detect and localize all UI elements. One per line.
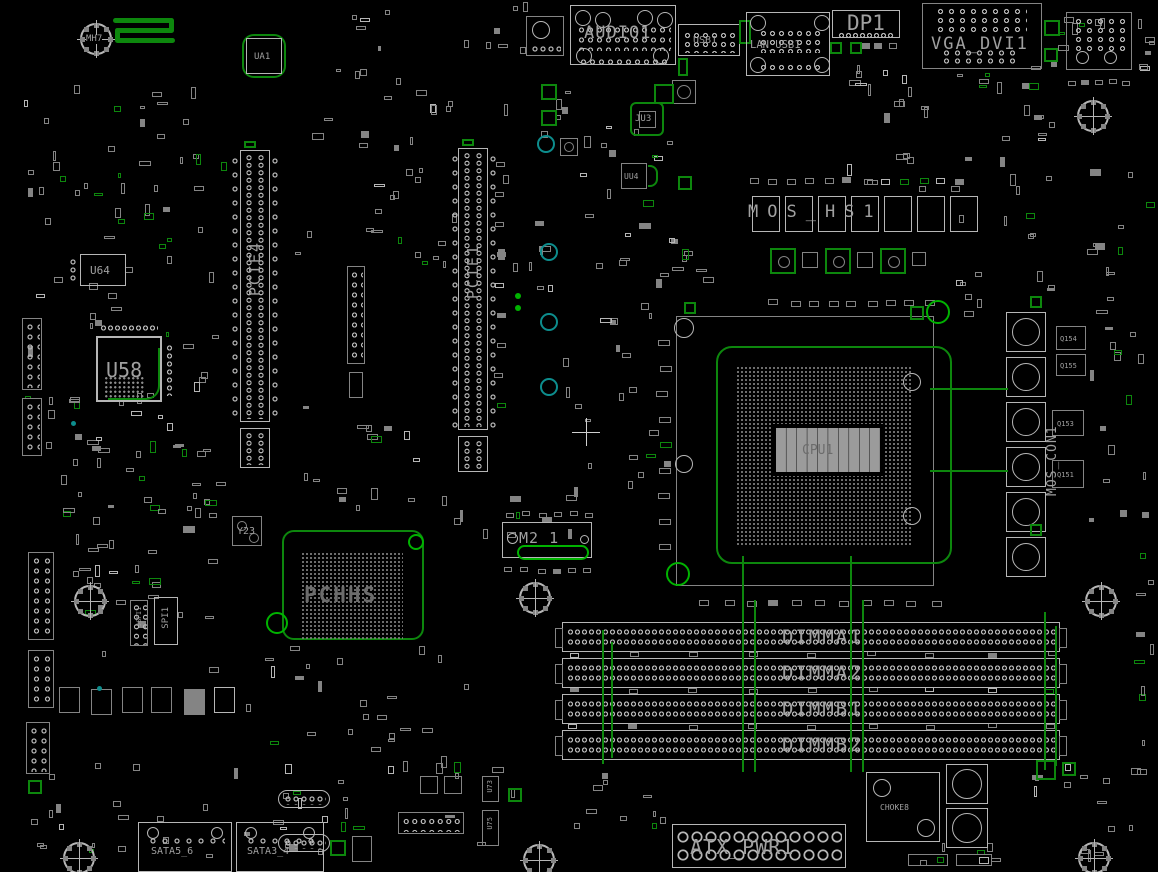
passive-component[interactable] — [956, 280, 964, 285]
passive-component[interactable] — [97, 458, 101, 468]
passive-component[interactable] — [371, 747, 381, 752]
passive-component[interactable] — [1064, 782, 1070, 788]
passive-component[interactable] — [144, 497, 152, 503]
passive-component[interactable] — [400, 728, 411, 731]
passive-component[interactable] — [563, 358, 569, 366]
passive-component[interactable] — [431, 105, 437, 115]
passive-component[interactable] — [1142, 740, 1146, 746]
passive-component[interactable] — [195, 508, 201, 518]
passive-component[interactable] — [562, 107, 567, 115]
passive-component[interactable] — [1080, 775, 1088, 779]
passive-component[interactable] — [158, 509, 166, 515]
passive-component[interactable] — [1047, 288, 1055, 292]
passive-component[interactable] — [903, 153, 909, 159]
passive-component[interactable] — [448, 101, 453, 108]
passive-component[interactable] — [1118, 225, 1124, 229]
passive-component[interactable] — [49, 810, 53, 818]
passive-component[interactable] — [548, 285, 553, 293]
passive-component[interactable] — [139, 161, 150, 165]
passive-component[interactable] — [76, 534, 79, 544]
vrm-inductor[interactable] — [950, 196, 978, 232]
passive-component[interactable] — [494, 28, 501, 34]
passive-component[interactable] — [629, 455, 638, 460]
passive-component[interactable] — [356, 505, 360, 511]
passive-component[interactable] — [205, 500, 216, 506]
passive-component[interactable] — [1136, 632, 1145, 637]
passive-component[interactable] — [139, 476, 146, 481]
passive-component[interactable] — [1131, 768, 1141, 774]
passive-component[interactable] — [622, 353, 631, 357]
passive-component[interactable] — [187, 506, 192, 511]
passive-component[interactable] — [357, 425, 369, 429]
passive-component[interactable] — [495, 192, 504, 197]
passive-component[interactable] — [69, 399, 80, 403]
mounting-hole-top-right[interactable] — [1077, 100, 1109, 132]
passive-component[interactable] — [951, 186, 960, 192]
passive-component[interactable] — [348, 729, 353, 735]
pcie-slot-pcie1-tail[interactable] — [458, 436, 488, 472]
passive-component[interactable] — [393, 191, 399, 199]
passive-component[interactable] — [197, 451, 206, 457]
passive-component[interactable] — [60, 176, 66, 182]
passive-component[interactable] — [643, 795, 653, 799]
passive-component[interactable] — [234, 768, 238, 779]
passive-component[interactable] — [152, 92, 161, 97]
vrm-mosfet-green[interactable] — [770, 248, 796, 274]
passive-component[interactable] — [889, 43, 897, 49]
passive-component[interactable] — [537, 286, 544, 290]
passive-component[interactable] — [669, 238, 675, 243]
passive-component[interactable] — [1145, 51, 1152, 55]
mosfet-q155[interactable]: Q155 — [1056, 354, 1086, 376]
passive-component[interactable] — [619, 260, 627, 266]
passive-component[interactable] — [419, 168, 422, 173]
passive-component[interactable] — [699, 600, 709, 606]
passive-component[interactable] — [205, 616, 214, 620]
choke[interactable] — [1006, 312, 1046, 352]
passive-component[interactable] — [862, 43, 870, 49]
passive-component[interactable] — [1138, 19, 1142, 29]
passive-component[interactable] — [415, 252, 421, 258]
passive-component[interactable] — [178, 612, 183, 618]
passive-component[interactable] — [628, 481, 633, 489]
dimm-slot-dimma1[interactable]: DIMMA1 — [562, 622, 1060, 652]
passive-component[interactable] — [649, 313, 652, 319]
passive-component[interactable] — [109, 571, 118, 574]
passive-component[interactable] — [31, 819, 38, 825]
passive-component[interactable] — [208, 559, 218, 565]
passive-component[interactable] — [656, 391, 668, 397]
passive-component[interactable] — [209, 513, 216, 519]
passive-component[interactable] — [979, 85, 987, 88]
passive-component[interactable] — [1068, 81, 1076, 86]
passive-component[interactable] — [957, 74, 964, 78]
passive-component[interactable] — [150, 441, 156, 453]
passive-component[interactable] — [602, 773, 608, 779]
mosfet-q154[interactable]: Q154 — [1056, 326, 1086, 350]
passive-component[interactable] — [643, 200, 654, 207]
passive-component[interactable] — [422, 261, 428, 265]
passive-component[interactable] — [936, 178, 945, 184]
passive-component[interactable] — [159, 244, 166, 249]
passive-component[interactable] — [216, 482, 226, 486]
passive-component[interactable] — [659, 468, 671, 474]
passive-component[interactable] — [846, 301, 856, 307]
passive-component[interactable] — [991, 858, 1001, 862]
passive-component[interactable] — [656, 279, 662, 288]
passive-component[interactable] — [209, 272, 214, 283]
passive-component[interactable] — [378, 46, 381, 51]
passive-component[interactable] — [355, 71, 360, 79]
passive-component[interactable] — [606, 126, 612, 129]
passive-component[interactable] — [194, 186, 203, 190]
passive-component[interactable] — [387, 696, 397, 699]
front-panel-header[interactable] — [28, 552, 54, 640]
passive-component[interactable] — [649, 430, 659, 435]
passive-component[interactable] — [359, 143, 368, 148]
passive-component[interactable] — [975, 272, 981, 278]
passive-component[interactable] — [419, 646, 425, 655]
passive-component[interactable] — [566, 495, 577, 501]
dimm-slot-dimma2[interactable]: DIMMA2 — [562, 658, 1060, 688]
passive-component[interactable] — [868, 301, 878, 307]
passive-component[interactable] — [660, 817, 666, 825]
passive-component[interactable] — [1046, 176, 1052, 181]
passive-component[interactable] — [869, 724, 878, 729]
passive-component[interactable] — [389, 733, 396, 739]
passive-component[interactable] — [894, 101, 904, 107]
passive-component[interactable] — [520, 567, 528, 572]
passive-component[interactable] — [270, 741, 279, 745]
passive-component[interactable] — [388, 766, 394, 773]
coil[interactable] — [946, 808, 988, 848]
passive-component[interactable] — [98, 448, 109, 453]
passive-component[interactable] — [639, 223, 650, 229]
spi-flash-chip[interactable]: SPI1 — [154, 597, 178, 645]
passive-component[interactable] — [157, 102, 169, 106]
passive-component[interactable] — [565, 91, 570, 94]
passive-component[interactable] — [337, 488, 347, 494]
passive-component[interactable] — [353, 826, 365, 829]
passive-component[interactable] — [566, 387, 570, 398]
passive-component[interactable] — [135, 565, 139, 573]
passive-component[interactable] — [1038, 133, 1047, 137]
passive-component[interactable] — [154, 185, 158, 192]
passive-component[interactable] — [658, 493, 670, 499]
passive-component[interactable] — [538, 569, 546, 574]
passive-component[interactable] — [652, 823, 657, 829]
lan-usb-connector[interactable]: LAN_USB1 — [746, 12, 830, 76]
small-part[interactable] — [908, 854, 948, 866]
passive-component[interactable] — [180, 157, 183, 164]
small-part[interactable] — [672, 80, 696, 104]
passive-component[interactable] — [114, 106, 121, 111]
passive-component[interactable] — [965, 157, 972, 161]
passive-component[interactable] — [48, 410, 55, 418]
passive-component[interactable] — [808, 688, 817, 693]
passive-component[interactable] — [433, 256, 439, 260]
passive-component[interactable] — [856, 71, 862, 77]
passive-component[interactable] — [504, 567, 512, 572]
passive-component[interactable] — [290, 646, 301, 651]
passive-component[interactable] — [1090, 169, 1101, 175]
passive-component[interactable] — [183, 526, 195, 533]
passive-component[interactable] — [688, 688, 697, 693]
passive-component[interactable] — [151, 687, 172, 713]
passive-component[interactable] — [246, 704, 251, 712]
passive-component[interactable] — [49, 774, 55, 780]
passive-component[interactable] — [203, 804, 208, 810]
passive-component[interactable] — [1140, 553, 1146, 559]
passive-component[interactable] — [497, 313, 506, 318]
choke[interactable] — [1006, 447, 1046, 487]
mounting-hole-bottom-center[interactable] — [523, 844, 555, 872]
passive-component[interactable] — [1100, 426, 1106, 431]
passive-component[interactable] — [374, 184, 385, 187]
passive-component[interactable] — [371, 230, 382, 234]
passive-component[interactable] — [307, 732, 316, 736]
passive-component[interactable] — [410, 137, 414, 145]
passive-component[interactable] — [404, 431, 410, 439]
passive-component[interactable] — [75, 434, 82, 441]
passive-component[interactable] — [1142, 512, 1149, 518]
choke[interactable] — [1006, 537, 1046, 577]
passive-component[interactable] — [585, 513, 593, 518]
passive-component[interactable] — [964, 311, 974, 317]
passive-component[interactable] — [997, 82, 1003, 94]
passive-component[interactable] — [630, 652, 639, 657]
passive-component[interactable] — [847, 164, 852, 175]
passive-component[interactable] — [583, 568, 591, 573]
passive-component[interactable] — [955, 179, 964, 185]
passive-component[interactable] — [184, 689, 205, 715]
passive-component[interactable] — [616, 345, 620, 352]
mounting-hole-mh7[interactable]: MH7 — [80, 23, 112, 55]
passive-component[interactable] — [1090, 370, 1094, 381]
passive-component[interactable] — [377, 715, 387, 721]
passive-component[interactable] — [148, 550, 157, 554]
mounting-hole-bottom-right[interactable] — [1078, 842, 1110, 872]
passive-component[interactable] — [360, 700, 368, 707]
passive-component[interactable] — [553, 569, 561, 574]
passive-component[interactable] — [194, 382, 200, 392]
passive-component[interactable] — [498, 44, 508, 48]
passive-component[interactable] — [588, 463, 592, 470]
passive-component[interactable] — [829, 301, 839, 307]
small-part[interactable] — [857, 252, 873, 268]
dimm-slot-dimmb1[interactable]: DIMMB1 — [562, 694, 1060, 724]
passive-component[interactable] — [1114, 350, 1121, 355]
passive-component[interactable] — [144, 213, 154, 220]
passive-component[interactable] — [1134, 660, 1144, 664]
passive-component[interactable] — [1107, 297, 1114, 301]
passive-component[interactable] — [979, 79, 989, 84]
chip-u73[interactable]: U73 — [482, 776, 499, 802]
passive-component[interactable] — [884, 600, 894, 606]
pch-chip[interactable]: PCHHS — [301, 552, 403, 640]
passive-component[interactable] — [919, 186, 925, 192]
passive-component[interactable] — [191, 87, 197, 99]
passive-component[interactable] — [371, 488, 378, 499]
passive-component[interactable] — [539, 513, 547, 518]
passive-component[interactable] — [398, 237, 402, 244]
small-part[interactable] — [349, 372, 363, 398]
small-part[interactable] — [560, 138, 578, 156]
passive-component[interactable] — [504, 104, 508, 115]
passive-component[interactable] — [108, 146, 114, 152]
passive-component[interactable] — [59, 824, 64, 830]
passive-component[interactable] — [516, 512, 520, 519]
passive-component[interactable] — [109, 540, 114, 549]
passive-component[interactable] — [942, 843, 945, 852]
choke[interactable] — [1006, 357, 1046, 397]
passive-component[interactable] — [792, 600, 802, 606]
passive-component[interactable] — [167, 256, 172, 264]
passive-component[interactable] — [46, 442, 52, 448]
rear-io-stack-connector[interactable] — [1066, 12, 1132, 70]
vrm-mosfet-green[interactable] — [825, 248, 851, 274]
passive-component[interactable] — [672, 267, 683, 271]
passive-component[interactable] — [396, 78, 401, 85]
passive-component[interactable] — [313, 479, 320, 482]
passive-component[interactable] — [638, 472, 645, 479]
passive-component[interactable] — [921, 106, 929, 110]
passive-component[interactable] — [28, 170, 33, 175]
passive-component[interactable] — [920, 178, 929, 184]
chip-u64[interactable]: U64 — [80, 254, 126, 286]
passive-component[interactable] — [118, 173, 121, 179]
passive-component[interactable] — [403, 761, 408, 772]
passive-component[interactable] — [522, 511, 530, 516]
passive-component[interactable] — [658, 340, 670, 346]
passive-component[interactable] — [337, 658, 343, 665]
passive-component[interactable] — [56, 804, 61, 813]
passive-component[interactable] — [659, 417, 671, 423]
passive-component[interactable] — [584, 136, 591, 148]
passive-component[interactable] — [312, 133, 324, 140]
passive-component[interactable] — [568, 724, 577, 729]
passive-component[interactable] — [102, 651, 106, 657]
passive-component[interactable] — [1087, 249, 1098, 255]
passive-component[interactable] — [118, 815, 129, 820]
passive-component[interactable] — [620, 816, 627, 821]
choke[interactable] — [1006, 402, 1046, 442]
passive-component[interactable] — [140, 106, 145, 109]
passive-component[interactable] — [384, 426, 392, 430]
passive-component[interactable] — [659, 544, 671, 550]
passive-component[interactable] — [36, 294, 45, 298]
passive-component[interactable] — [932, 601, 942, 607]
passive-component[interactable] — [628, 724, 637, 729]
passive-component[interactable] — [988, 688, 997, 693]
sata-connector-5-6[interactable]: SATA5_6 — [138, 822, 232, 872]
passive-component[interactable] — [629, 387, 637, 394]
passive-component[interactable] — [73, 459, 78, 466]
pin-header[interactable] — [28, 650, 54, 708]
passive-component[interactable] — [868, 84, 871, 96]
passive-component[interactable] — [196, 154, 201, 165]
choke8[interactable]: CHOKE8 — [866, 772, 940, 842]
passive-component[interactable] — [1130, 332, 1136, 337]
crystal-y23[interactable]: Y23 — [232, 516, 262, 546]
passive-component[interactable] — [94, 193, 103, 197]
small-part[interactable] — [802, 252, 818, 268]
pcie-slot-pcie1[interactable]: PCIE1 — [458, 148, 488, 430]
passive-component[interactable] — [454, 762, 460, 773]
passive-component[interactable] — [580, 173, 587, 177]
passive-component[interactable] — [1146, 202, 1154, 208]
passive-component[interactable] — [664, 461, 671, 467]
passive-component[interactable] — [1030, 233, 1036, 236]
passive-component[interactable] — [660, 442, 672, 448]
passive-component[interactable] — [265, 658, 274, 661]
mounting-hole-center[interactable] — [519, 582, 551, 614]
passive-component[interactable] — [1002, 136, 1010, 141]
passive-component[interactable] — [1109, 79, 1117, 84]
small-part[interactable] — [352, 836, 372, 862]
passive-component[interactable] — [446, 106, 451, 112]
passive-component[interactable] — [977, 299, 982, 308]
passive-component[interactable] — [809, 301, 819, 307]
passive-component[interactable] — [1095, 80, 1103, 85]
passive-component[interactable] — [104, 236, 115, 239]
passive-component[interactable] — [198, 227, 203, 233]
passive-component[interactable] — [212, 335, 218, 339]
passive-component[interactable] — [443, 261, 446, 269]
passive-component[interactable] — [506, 513, 514, 518]
passive-component[interactable] — [1029, 83, 1039, 90]
passive-component[interactable] — [111, 307, 121, 311]
passive-component[interactable] — [1126, 395, 1132, 405]
passive-component[interactable] — [1089, 518, 1094, 522]
chip-u75[interactable]: U75 — [482, 810, 499, 846]
passive-component[interactable] — [1038, 138, 1046, 142]
passive-component[interactable] — [75, 190, 81, 196]
passive-component[interactable] — [54, 277, 63, 283]
passive-component[interactable] — [864, 179, 873, 185]
passive-component[interactable] — [203, 449, 211, 452]
passive-component[interactable] — [601, 143, 607, 148]
passive-component[interactable] — [965, 294, 971, 300]
passive-component[interactable] — [307, 231, 312, 238]
passive-component[interactable] — [787, 179, 796, 185]
passive-component[interactable] — [192, 483, 201, 486]
passive-component[interactable] — [1051, 62, 1057, 67]
passive-component[interactable] — [1010, 174, 1016, 186]
passive-component[interactable] — [855, 83, 867, 87]
passive-component[interactable] — [132, 581, 140, 585]
jumper-block[interactable] — [278, 790, 330, 808]
passive-component[interactable] — [352, 15, 358, 20]
passive-component[interactable] — [24, 100, 28, 107]
passive-component[interactable] — [356, 26, 366, 30]
passive-component[interactable] — [659, 519, 671, 525]
passive-component[interactable] — [438, 241, 447, 247]
passive-component[interactable] — [108, 293, 117, 298]
passive-component[interactable] — [90, 313, 96, 320]
passive-component[interactable] — [839, 601, 849, 607]
passive-component[interactable] — [140, 119, 145, 127]
small-part[interactable] — [912, 252, 926, 266]
passive-component[interactable] — [768, 299, 778, 305]
passive-component[interactable] — [1059, 32, 1064, 35]
passive-component[interactable] — [1129, 825, 1132, 831]
passive-component[interactable] — [295, 676, 304, 680]
passive-component[interactable] — [1034, 115, 1042, 120]
passive-component[interactable] — [842, 177, 851, 183]
passive-component[interactable] — [556, 99, 562, 110]
passive-component[interactable] — [725, 600, 735, 606]
